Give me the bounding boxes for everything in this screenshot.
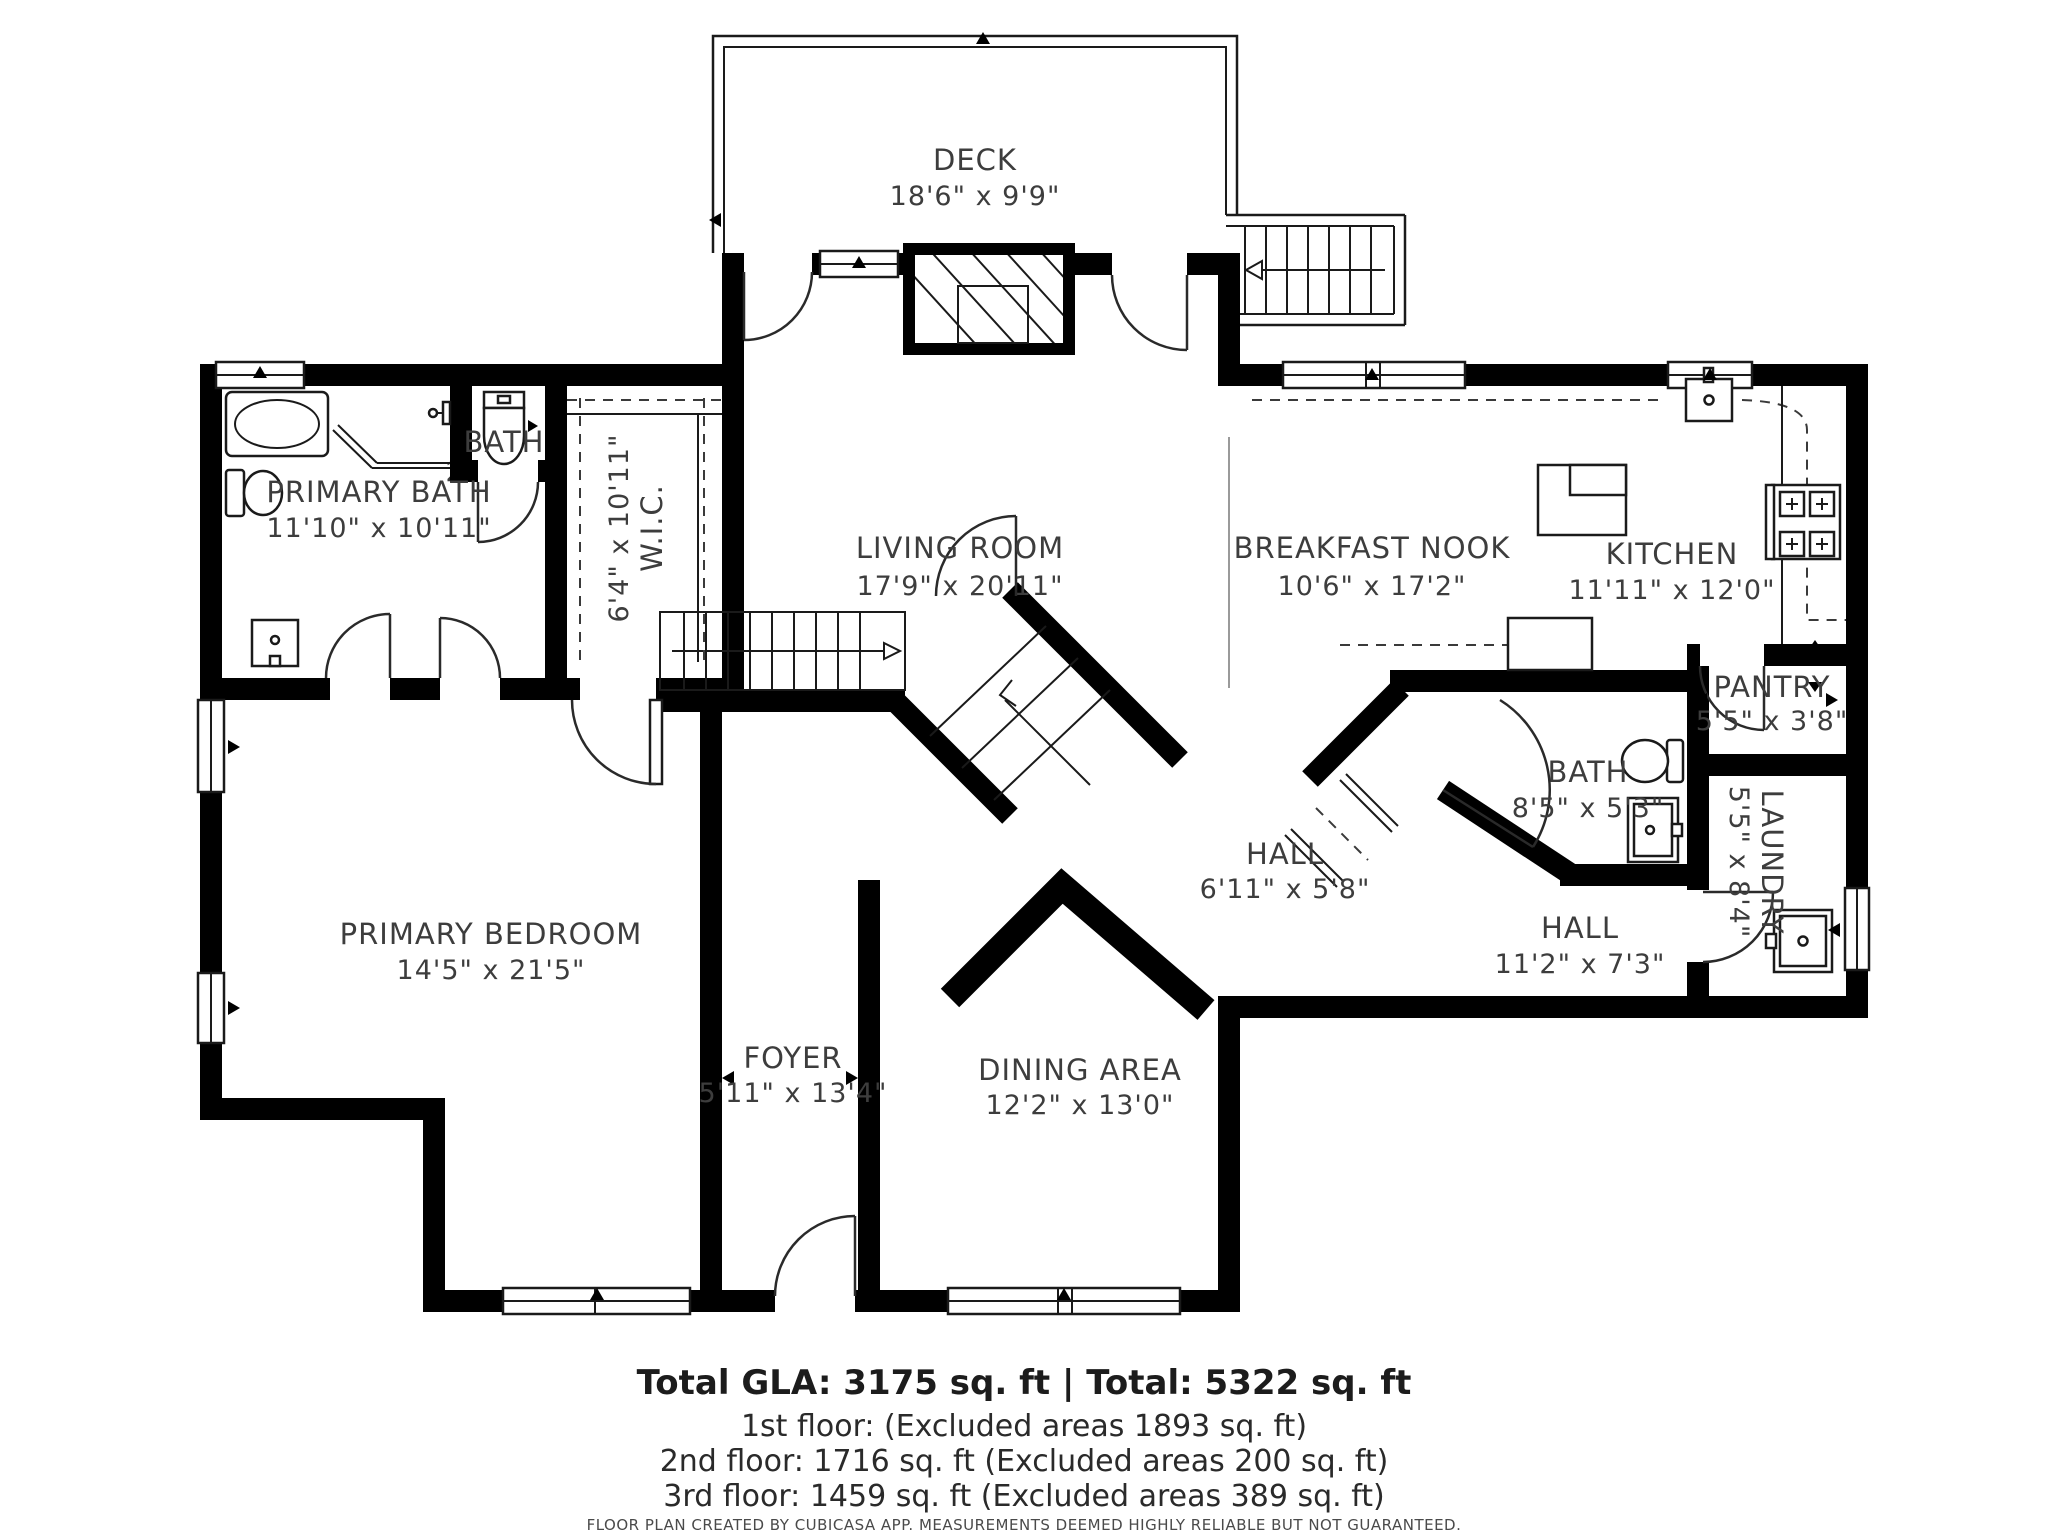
cabinet xyxy=(1508,618,1592,670)
floor-plan: 2'6" x 3' xyxy=(0,0,2048,1536)
room-label-hall-upper: HALL xyxy=(1246,837,1324,871)
sink xyxy=(252,620,298,666)
window xyxy=(1845,888,1869,970)
room-label-foyer: FOYER xyxy=(743,1041,842,1075)
summary-floor1: 1st floor: (Excluded areas 1893 sq. ft) xyxy=(741,1409,1307,1444)
door xyxy=(744,272,812,340)
room-label-deck: DECK xyxy=(933,143,1017,177)
stairs-direction-arrow xyxy=(1246,261,1262,279)
room-dims-dining-area: 12'2" x 13'0" xyxy=(986,1090,1175,1121)
room-dims-living-room: 17'9" x 20'11" xyxy=(856,571,1063,602)
room-label-wic: W.I.C. xyxy=(635,484,669,572)
window xyxy=(198,700,224,792)
door xyxy=(775,1216,855,1296)
openings xyxy=(1229,437,1398,887)
door xyxy=(326,614,390,678)
summary-disclaimer: FLOOR PLAN CREATED BY CUBICASA APP. MEAS… xyxy=(587,1516,1462,1534)
summary-block: Total GLA: 3175 sq. ft | Total: 5322 sq.… xyxy=(587,1363,1462,1534)
shower-glass xyxy=(333,425,450,468)
room-dims-bath: 8'5" x 5'3" xyxy=(1512,793,1665,824)
shower-head-icon xyxy=(429,402,450,424)
window xyxy=(198,973,224,1043)
room-label-pantry: PANTRY xyxy=(1714,670,1831,704)
room-dims-primary-bath: 11'10" x 10'11" xyxy=(266,513,491,544)
door xyxy=(440,618,500,678)
room-dims-wic: 6'4" x 10'11" xyxy=(604,434,635,623)
summary-total: Total GLA: 3175 sq. ft | Total: 5322 sq.… xyxy=(637,1363,1412,1403)
room-dims-foyer: 5'11" x 13'4" xyxy=(699,1078,888,1109)
room-dims-hall-lower: 11'2" x 7'3" xyxy=(1495,949,1666,980)
room-dims-hall-upper: 6'11" x 5'8" xyxy=(1200,874,1371,905)
room-dims-laundry: 5'5" x 8'4" xyxy=(1723,786,1754,939)
stove xyxy=(1766,485,1840,559)
toilet xyxy=(1622,740,1683,782)
room-dims-pantry: 5'5" x 3'8" xyxy=(1696,706,1849,737)
deck-stairs xyxy=(1226,215,1405,325)
room-dims-kitchen: 11'11" x 12'0" xyxy=(1568,575,1775,606)
room-label-breakfast-nook: BREAKFAST NOOK xyxy=(1234,531,1511,565)
room-label-dining-area: DINING AREA xyxy=(978,1053,1182,1087)
kitchen-island xyxy=(1538,465,1626,535)
room-dims-primary-bedroom: 14'5" x 21'5" xyxy=(397,955,586,986)
door xyxy=(1443,700,1550,847)
room-label-primary-bedroom: PRIMARY BEDROOM xyxy=(340,917,643,951)
floor-plan-page: 2'6" x 3' xyxy=(0,0,2048,1536)
summary-floor2: 2nd floor: 1716 sq. ft (Excluded areas 2… xyxy=(660,1444,1389,1479)
room-dims-deck: 18'6" x 9'9" xyxy=(890,181,1061,212)
room-label-primary-bath: PRIMARY BATH xyxy=(266,475,491,509)
room-dims-breakfast-nook: 10'6" x 17'2" xyxy=(1278,571,1467,602)
room-label-living-room: LIVING ROOM xyxy=(856,531,1064,565)
room-label-hall-lower: HALL xyxy=(1541,911,1619,945)
bathtub xyxy=(226,392,328,456)
door xyxy=(1112,275,1187,350)
summary-floor3: 3rd floor: 1459 sq. ft (Excluded areas 3… xyxy=(663,1479,1384,1514)
room-label-laundry: LAUNDRY xyxy=(1755,790,1789,935)
room-label-kitchen: KITCHEN xyxy=(1606,537,1739,571)
door xyxy=(572,700,662,784)
room-label-toilet-room: BATH xyxy=(463,425,544,459)
room-label-bath: BATH xyxy=(1547,755,1628,789)
